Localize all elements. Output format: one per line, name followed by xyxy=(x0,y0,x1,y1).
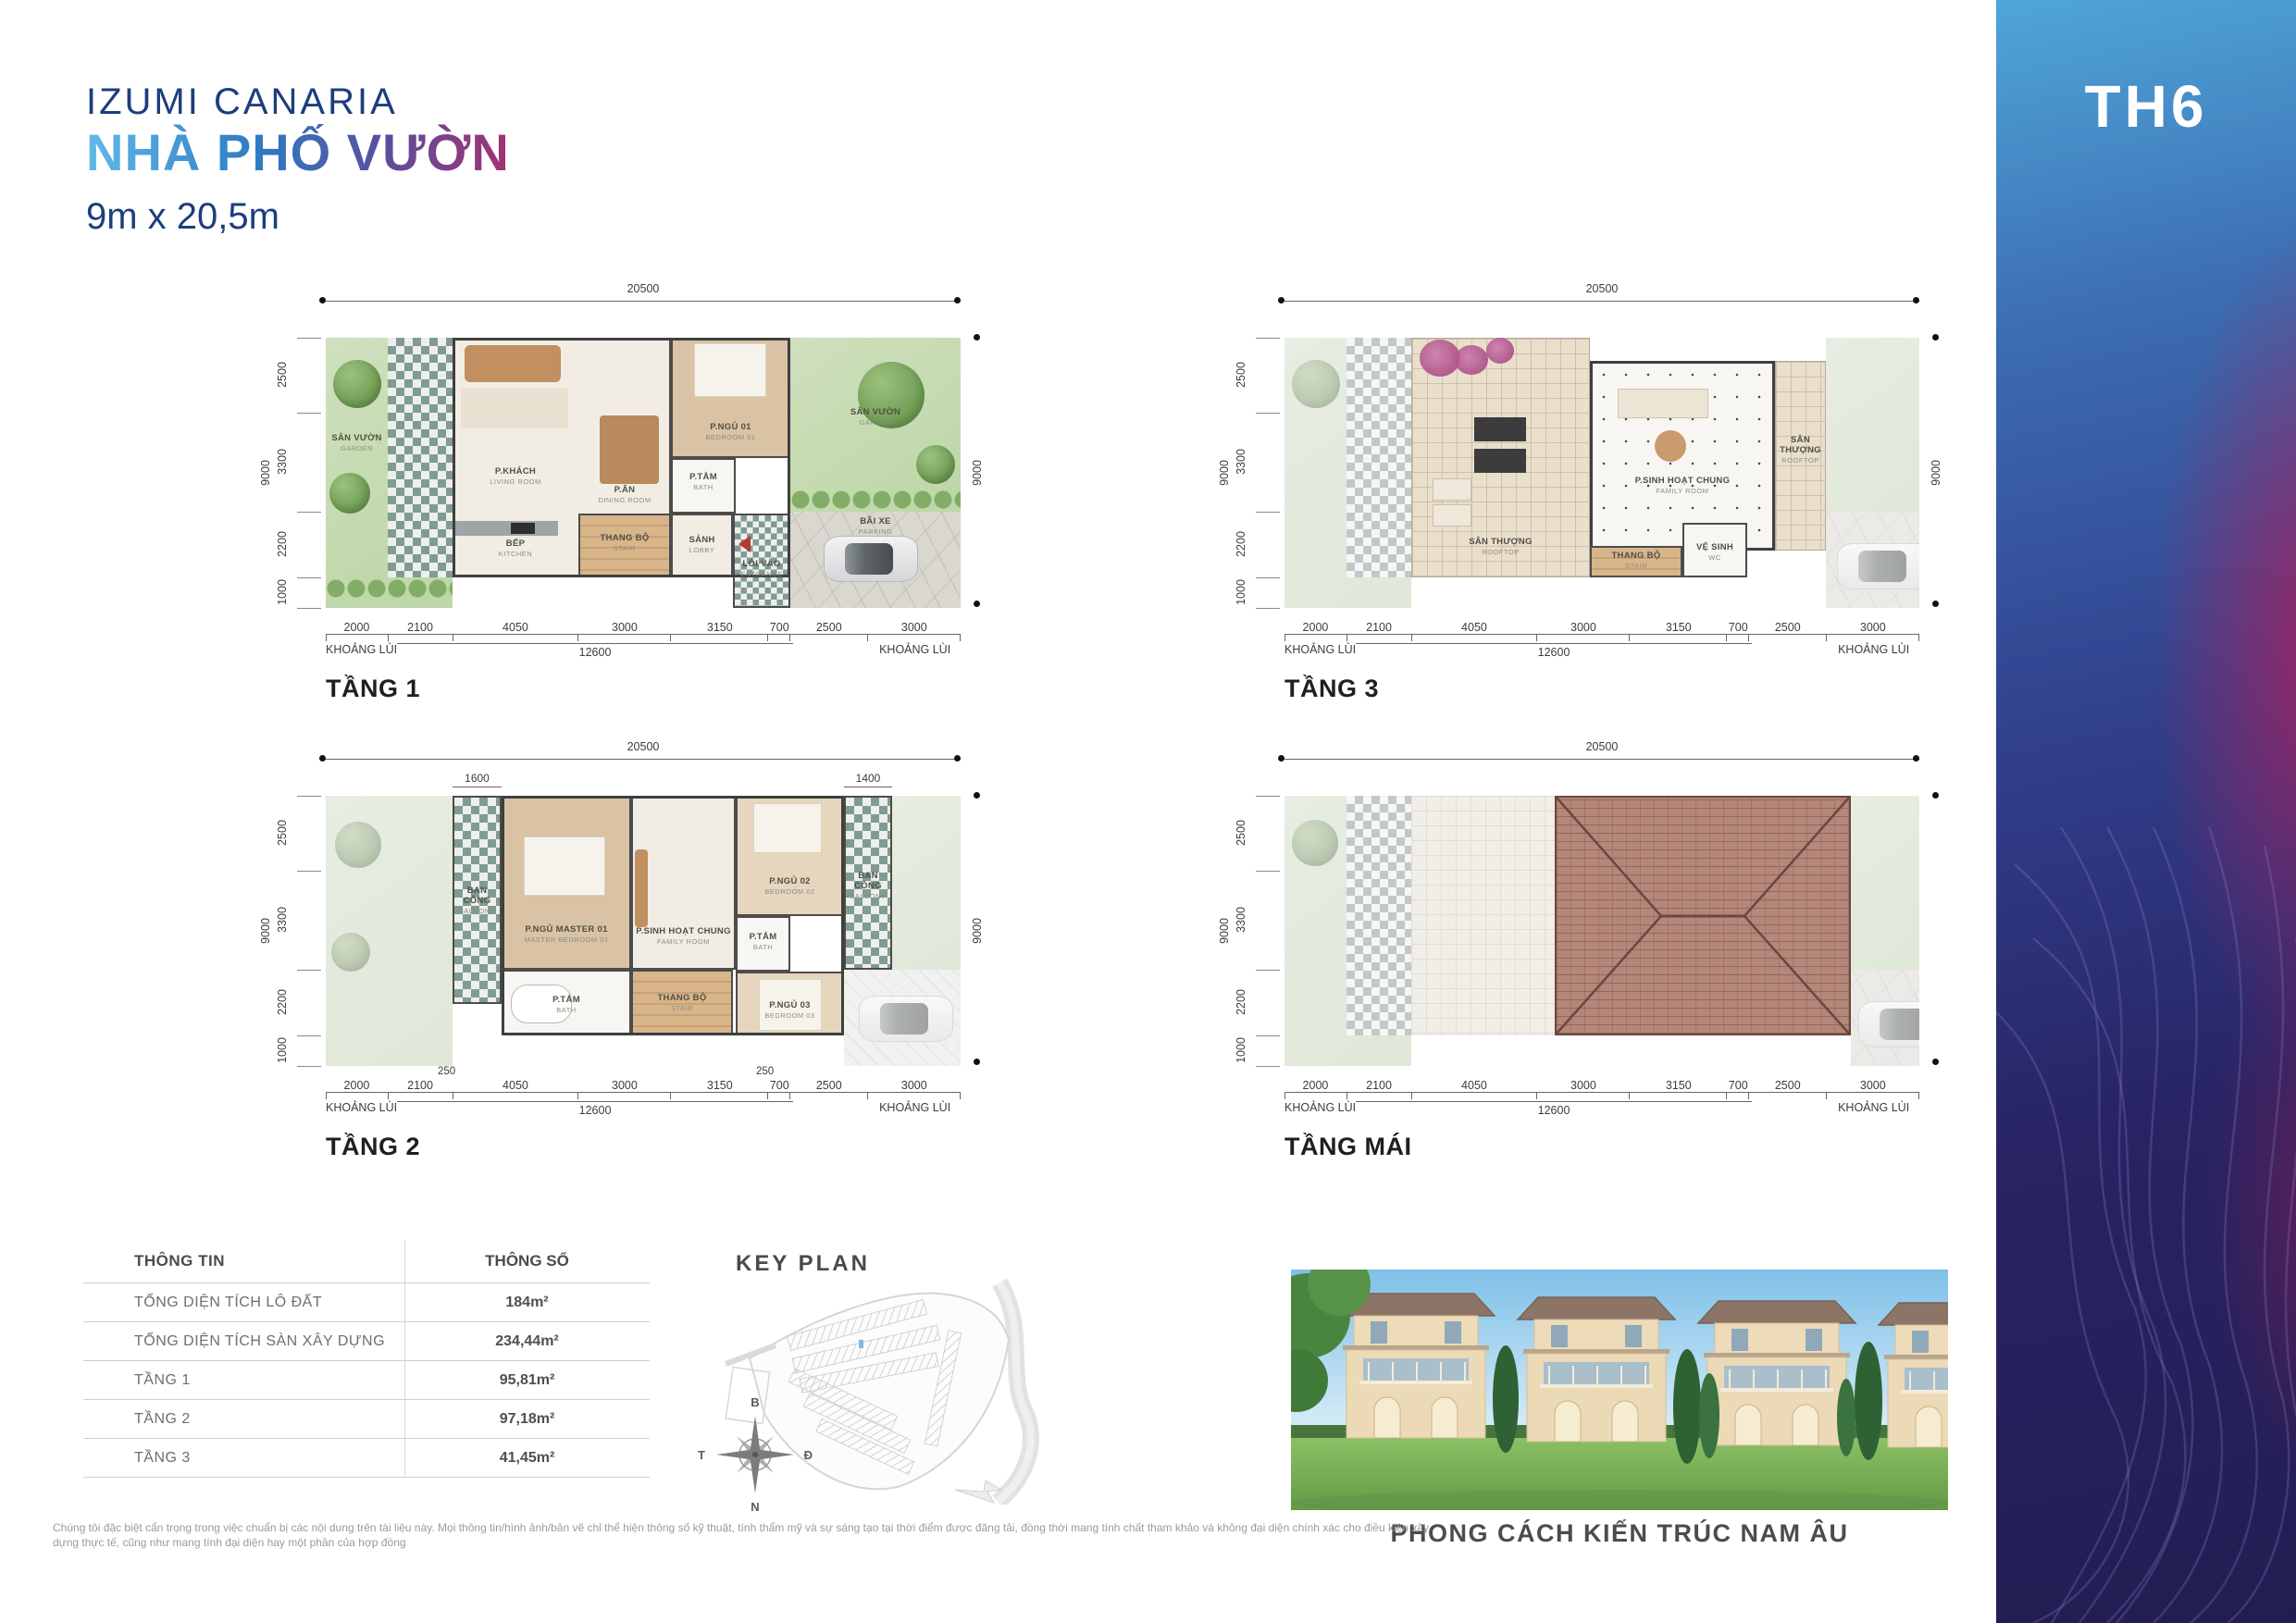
sofa xyxy=(1618,389,1708,418)
bed xyxy=(694,343,766,397)
dim-total-width: 20500 xyxy=(326,282,961,295)
dim-top: 20500 xyxy=(326,282,961,306)
room-label-garden-left: SÂN VƯỜNGARDEN xyxy=(326,434,388,453)
dim-balcony-right: 1400 xyxy=(844,772,892,787)
roof-ridge-lines xyxy=(1555,796,1851,1035)
dim-250: 250 xyxy=(438,1066,455,1077)
room-label-master-bath: P.TẮMBATH xyxy=(502,996,631,1015)
room-label-bath2: P.TẮMBATH xyxy=(736,933,790,952)
brand-title: IZUMI CANARIA xyxy=(86,81,398,123)
dim-bottom: 2000210040503000315070025003000 KHOẢNG L… xyxy=(326,621,961,659)
lot-size: 9m x 20,5m xyxy=(86,196,279,238)
floor-caption-2: TẦNG 2 xyxy=(326,1133,420,1161)
table-row: TỔNG DIỆN TÍCH LÔ ĐẤT 184m² xyxy=(83,1283,650,1322)
floorplan-roof: 20500 9000 2500 3300 2200 1000 xyxy=(1215,740,1983,1175)
tree-icon xyxy=(333,360,381,408)
hedge-row xyxy=(790,489,961,510)
floor-caption-3: TẦNG 3 xyxy=(1285,675,1379,703)
architecture-photo xyxy=(1291,1270,1948,1510)
floorplan-1: 20500 9000 2500 3300 2200 1000 9000 xyxy=(256,282,1024,717)
room-label-balcony-right: BAN CÔNGBALCONY xyxy=(844,872,892,900)
decorative-curves xyxy=(1996,827,2296,1623)
round-table xyxy=(1655,430,1686,462)
room-label-family: P.SINH HOẠT CHUNGFAMILY ROOM xyxy=(1590,477,1775,496)
room-label-rooftop-left: SÂN THƯỢNGROOFTOP xyxy=(1411,538,1590,557)
room-label-wc: VỆ SINHWC xyxy=(1682,543,1747,563)
bougainvillea xyxy=(1455,345,1488,375)
room-label-dining: P.ĂNDINING ROOM xyxy=(578,486,671,505)
floor-caption-roof: TẦNG MÁI xyxy=(1285,1133,1411,1161)
page-title: NHÀ PHỐ VƯỜN xyxy=(86,122,510,182)
room-label-bed03: P.NGỦ 03BEDROOM 03 xyxy=(736,1001,844,1021)
room-label-parking: BÃI XEPARKING xyxy=(790,517,961,537)
floorplan-2: 20500 1600 1400 9000 2500 3300 2200 1000… xyxy=(256,740,1024,1175)
bed xyxy=(753,803,822,853)
tree-icon xyxy=(329,473,370,514)
dim-dot xyxy=(319,297,326,304)
room-label-stair: THANG BỘSTAIR xyxy=(1590,551,1682,571)
car-icon xyxy=(824,536,918,582)
spec-table: THÔNG TIN THÔNG SỐ TỔNG DIỆN TÍCH LÔ ĐẤT… xyxy=(83,1240,650,1478)
room-label-master: P.NGỦ MASTER 01MASTER BEDROOM 01 xyxy=(502,925,631,945)
bougainvillea xyxy=(1486,338,1514,364)
sofa xyxy=(465,345,561,382)
hedge-row xyxy=(326,578,453,599)
plan-canvas-roof xyxy=(1285,796,1919,1066)
dim-dot xyxy=(954,297,961,304)
room-label-living: P.KHÁCHLIVING ROOM xyxy=(453,467,578,487)
table-row: TẦNG 2 97,18m² xyxy=(83,1400,650,1439)
plan-canvas-floor1: SÂN VƯỜNGARDEN P.KHÁCHLIVING ROOM P.ĂNDI… xyxy=(326,338,961,608)
table-header-row: THÔNG TIN THÔNG SỐ xyxy=(83,1240,650,1283)
lounger xyxy=(1433,504,1471,527)
compass-north: B xyxy=(711,1395,800,1409)
compass-west: T xyxy=(698,1448,705,1462)
keyplan-title: KEY PLAN xyxy=(736,1251,870,1277)
lounger xyxy=(1433,478,1471,501)
room-label-balcony-left: BAN CÔNGBALCONY xyxy=(453,886,502,915)
table-row: TỔNG DIỆN TÍCH SÀN XÂY DỰNG 234,44m² xyxy=(83,1322,650,1361)
room-label-stair: THANG BỘSTAIR xyxy=(578,534,671,553)
dim-depth-right: 9000 xyxy=(971,445,984,501)
plan-canvas-floor2: BAN CÔNGBALCONY P.NGỦ MASTER 01MASTER BE… xyxy=(326,796,961,1066)
sidebar: TH6 xyxy=(1996,0,2296,1623)
kitchen-counter xyxy=(454,521,558,536)
setback-label: KHOẢNG LÙI xyxy=(326,643,397,659)
outdoor-kitchen xyxy=(1474,449,1526,473)
room-label-bath: P.TẮMBATH xyxy=(671,473,736,492)
col-header-info: THÔNG TIN xyxy=(83,1252,404,1270)
floor-caption-1: TẦNG 1 xyxy=(326,675,420,703)
highlighted-lot xyxy=(859,1340,863,1348)
dim-dot xyxy=(974,334,980,341)
dim-v2: 3300 xyxy=(276,434,289,489)
room-label-stair: THANG BỘSTAIR xyxy=(631,994,733,1013)
ghost-garden-right xyxy=(1851,796,1919,1066)
room-label-bed01: P.NGỦ 01BEDROOM 01 xyxy=(671,423,790,442)
room-label-family: P.SINH HOẠT CHUNGFAMILY ROOM xyxy=(631,927,736,947)
table-divider xyxy=(404,1240,405,1478)
compass-rose-icon xyxy=(711,1410,800,1499)
floorplan-3: 20500 9000 2500 3300 2200 1000 9000 xyxy=(1215,282,1983,717)
unit-code: TH6 xyxy=(1996,72,2296,141)
disclaimer-text: Chúng tôi đặc biệt cẩn trọng trong việc … xyxy=(53,1520,1432,1550)
compass: B Đ N T xyxy=(711,1410,800,1499)
dim-subtotal: 12600 xyxy=(397,643,793,659)
dim-balcony-left: 1600 xyxy=(453,772,502,787)
ghost-garden-right xyxy=(844,796,961,1066)
table-row: TẦNG 1 95,81m² xyxy=(83,1361,650,1400)
dim-depth-left: 9000 xyxy=(259,445,272,501)
sofa xyxy=(635,849,648,927)
outdoor-kitchen xyxy=(1474,417,1526,441)
room-label-rooftop-right: SÂN THƯỢNGROOFTOP xyxy=(1775,436,1826,465)
col-header-value: THÔNG SỐ xyxy=(404,1252,650,1270)
ghost-garden-right xyxy=(1826,338,1919,608)
rug xyxy=(461,388,568,428)
dim-v1: 2500 xyxy=(276,347,289,403)
plan-canvas-floor3: SÂN THƯỢNGROOFTOP P.SINH HOẠT CHUNGFAMIL… xyxy=(1285,338,1919,608)
room-label-kitchen: BẾPKITCHEN xyxy=(453,539,578,559)
dining-table xyxy=(600,415,659,484)
stove xyxy=(511,523,535,534)
room-label-bed02: P.NGỦ 02BEDROOM 02 xyxy=(736,877,844,897)
dim-v3: 2200 xyxy=(276,516,289,572)
dim-dot xyxy=(974,601,980,607)
tree-icon xyxy=(916,445,955,484)
compass-east: Đ xyxy=(804,1448,813,1462)
ghost-surround-left xyxy=(1285,796,1555,1066)
dim-v4: 1000 xyxy=(276,564,289,620)
room-label-lobby: SẢNHLOBBY xyxy=(671,536,733,555)
room-label-entrance: LỐI VÀOENTRANCE xyxy=(733,560,790,579)
dim-line xyxy=(326,301,961,308)
table-row: TẦNG 3 41,45m² xyxy=(83,1439,650,1478)
ghost-garden-left xyxy=(326,796,453,1066)
room-label-garden-right: SÂN VƯỜNGARDEN xyxy=(790,408,961,427)
entrance-arrow-icon xyxy=(738,536,751,552)
bed xyxy=(524,836,605,896)
ghost-garden-left xyxy=(1285,338,1411,608)
compass-south: N xyxy=(711,1500,800,1514)
brochure-page: IZUMI CANARIA NHÀ PHỐ VƯỜN 9m x 20,5m 20… xyxy=(0,0,2296,1623)
setback-label: KHOẢNG LÙI xyxy=(869,643,961,659)
dim-250: 250 xyxy=(756,1066,774,1077)
walkway xyxy=(388,338,453,577)
